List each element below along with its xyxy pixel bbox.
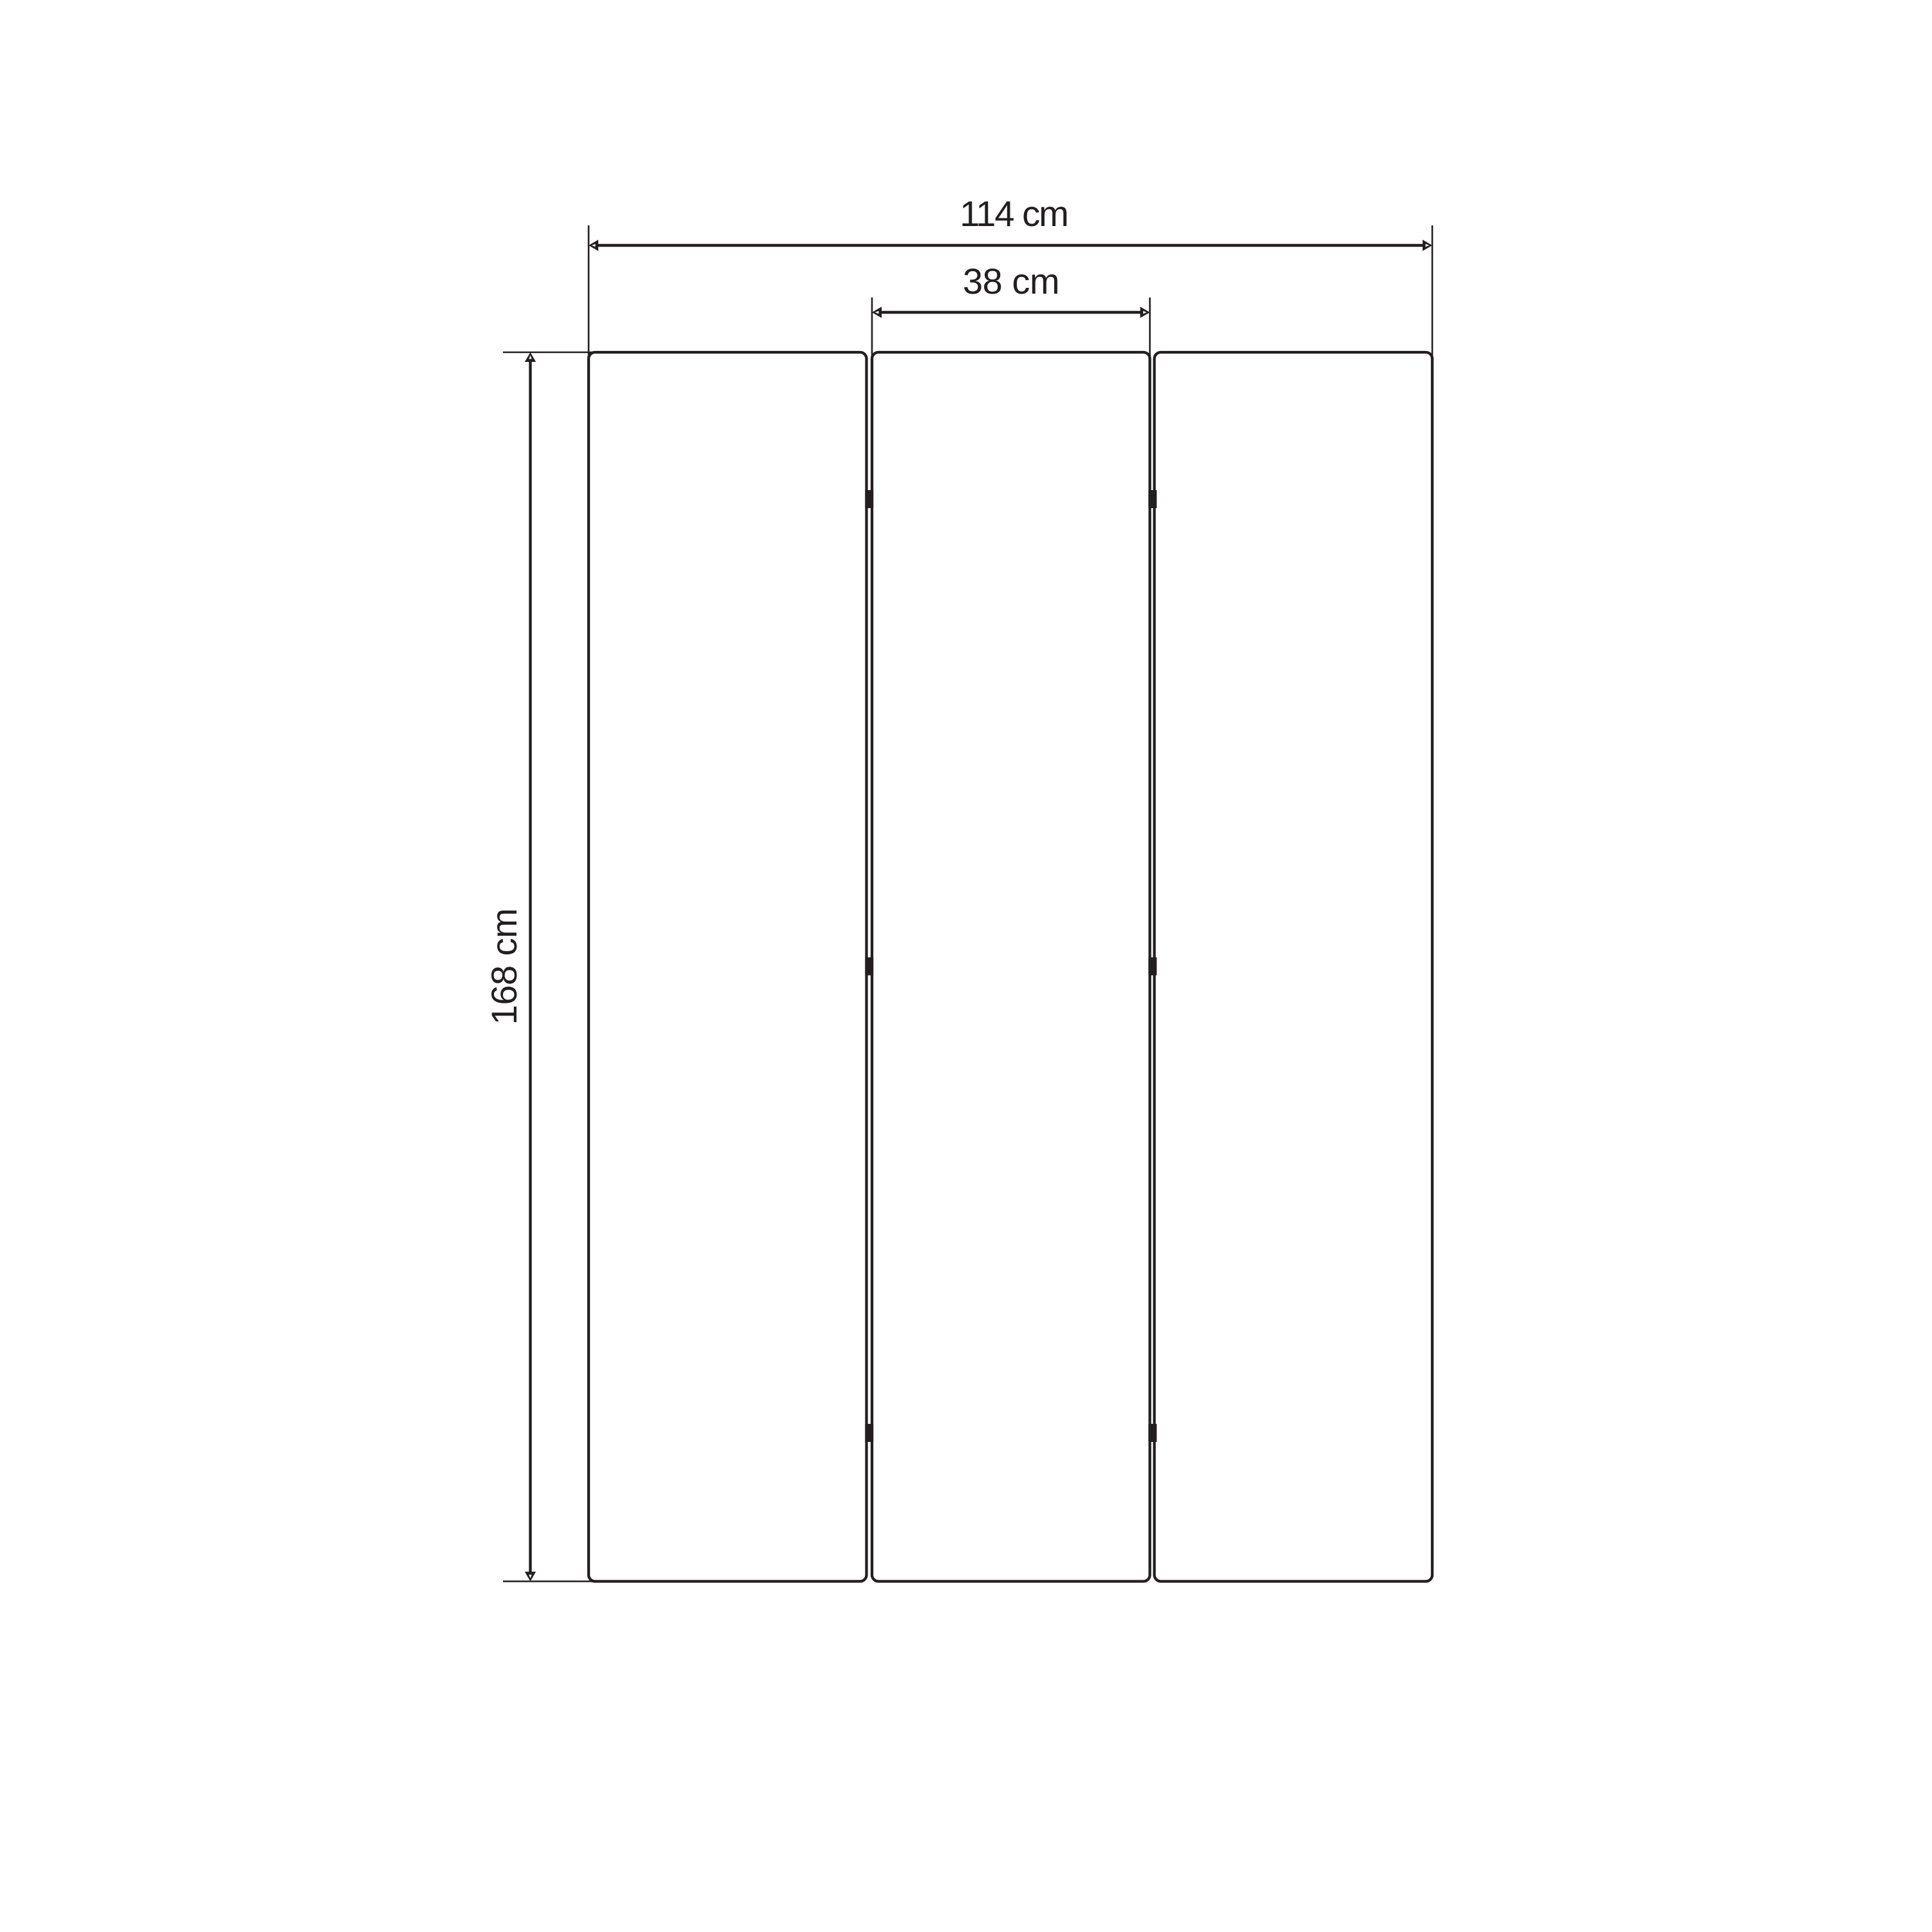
svg-text:168 cm: 168 cm: [484, 909, 524, 1025]
svg-text:114 cm: 114 cm: [960, 193, 1067, 234]
svg-text:38 cm: 38 cm: [963, 261, 1059, 301]
